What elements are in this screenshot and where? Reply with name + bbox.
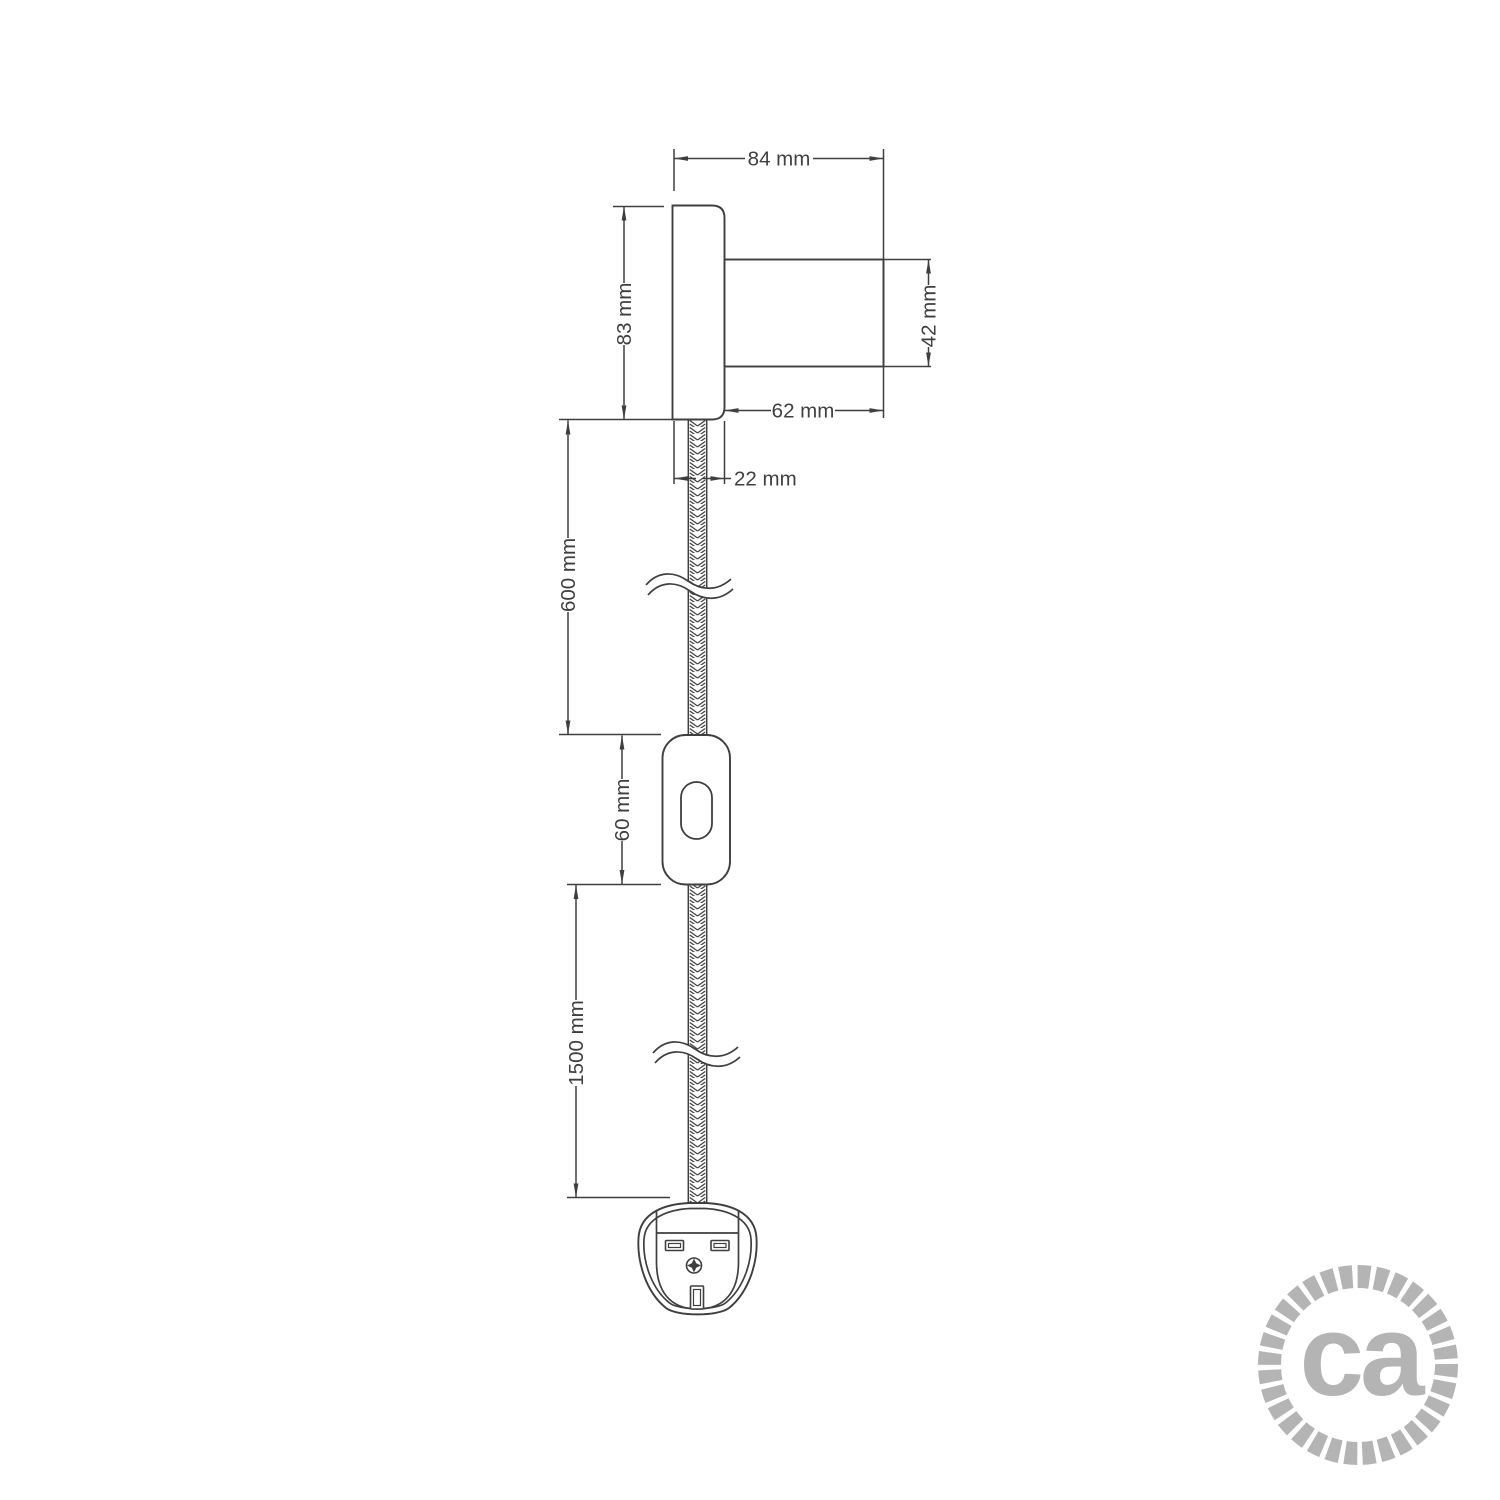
upper-cable	[688, 420, 706, 736]
lamp-cylinder	[725, 260, 884, 367]
plug-pin-slot-left	[666, 1241, 684, 1251]
logo-text: ca	[1299, 1290, 1426, 1420]
dim-label-upper-cable: 600 mm	[557, 538, 580, 612]
plug-cord-grip-slot	[691, 1286, 704, 1309]
technical-drawing-page: 84 mm 83 mm 42 mm 62 mm 22 mm 600 mm 60 …	[0, 0, 1500, 1500]
inline-switch	[663, 735, 731, 885]
dim-label-switch: 60 mm	[611, 779, 634, 842]
plug-pin-slot-right	[711, 1241, 729, 1251]
dim-label-overall-depth: 84 mm	[748, 148, 811, 171]
dim-label-plate-thickness: 22 mm	[734, 468, 797, 491]
dim-label-lower-cable: 1500 mm	[565, 1000, 588, 1085]
plug	[638, 1203, 756, 1314]
wall-plate	[673, 206, 725, 420]
dim-label-cylinder-length: 62 mm	[772, 400, 835, 423]
technical-drawing: 84 mm 83 mm 42 mm 62 mm 22 mm 600 mm 60 …	[0, 0, 1500, 1500]
plug-screw	[687, 1258, 702, 1273]
brand-logo: ca	[1253, 1260, 1463, 1470]
lower-cable	[688, 885, 706, 1204]
dim-label-cylinder-diameter: 42 mm	[918, 285, 941, 348]
dim-label-plate-height: 83 mm	[613, 283, 636, 346]
switch-rocker	[681, 782, 712, 839]
